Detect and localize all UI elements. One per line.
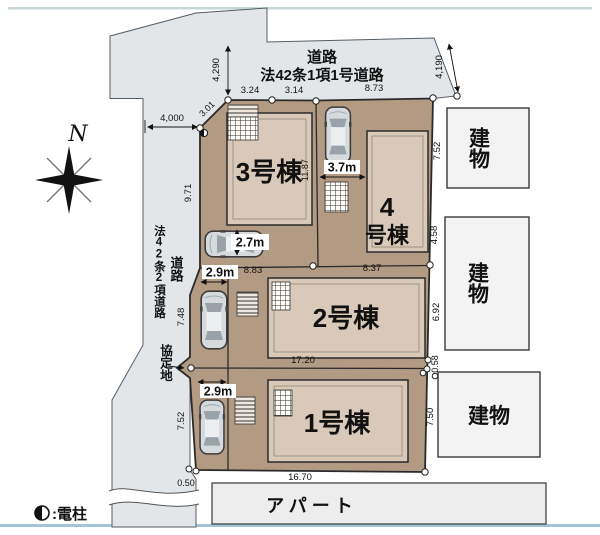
neighbor-building-2-label: 建物: [466, 261, 490, 305]
dim-mid-left: 8.83: [244, 265, 263, 276]
unit4-label-digit: 4: [380, 192, 395, 222]
unit1-parking-width: 2.9m: [204, 385, 233, 399]
dim-front-1: 3.24: [241, 85, 260, 96]
legend-pole-label: :電柱: [52, 505, 87, 523]
unit2-parking-width: 2.9m: [206, 266, 235, 280]
dim-front-3: 8.73: [365, 83, 384, 94]
unit3-label: 3号棟: [236, 157, 303, 187]
dim-east-2: 4.58: [429, 226, 440, 245]
car-icon: [199, 400, 225, 454]
dim-front-2: 3.14: [285, 85, 304, 96]
apartment-label: アパート: [266, 496, 358, 516]
unit3-parking-width: 2.7m: [236, 236, 265, 250]
dim-east-3: 6.92: [431, 303, 442, 322]
unit4-label-suffix: 号棟: [365, 223, 410, 248]
dim-west-lower: 7.52: [176, 412, 187, 431]
top-road-name: 道路: [307, 48, 338, 66]
dim-road-west-width: 4,000: [160, 113, 184, 124]
dim-road-top-left: 4,290: [211, 58, 222, 82]
dim-south-width: 16.70: [288, 472, 312, 483]
dim-mid-width: 17.20: [291, 355, 315, 366]
dim-east-4: 0.58: [430, 355, 440, 373]
unit4-parking-width: 3.7m: [328, 161, 357, 175]
west-road-name: 道路: [169, 255, 184, 282]
unit1-stairs-icon: [235, 397, 255, 424]
unit3-balcony-grid-icon: [228, 117, 258, 140]
dim-west-step: 0.50: [177, 478, 195, 488]
car-icon: [200, 291, 228, 349]
dim-road-top-right: 4,190: [434, 55, 445, 79]
top-accent-rule: [8, 7, 592, 10]
car-icon: [324, 107, 351, 163]
site-plan-page: 4,000 3.24 3.14 8.73 4,290 4,190 3.01 9.…: [0, 0, 600, 535]
north-label: N: [67, 122, 88, 147]
agreement-area-label: 協定地: [158, 343, 173, 382]
west-road-law: 法42条2項道路: [153, 224, 167, 319]
neighbor-building-3-label: 建物: [468, 404, 510, 428]
site-plan-svg: 4,000 3.24 3.14 8.73 4,290 4,190 3.01 9.…: [0, 0, 600, 535]
utility-pole-icon: [200, 129, 207, 136]
dim-mid-right: 8.37: [363, 263, 382, 274]
unit2-label: 2号棟: [313, 303, 380, 333]
apartment-building: [212, 483, 546, 524]
neighbor-building-1-label: 建物: [467, 126, 491, 170]
unit1-balcony-grid-icon: [274, 390, 292, 416]
utility-pole-icon: [35, 506, 49, 520]
top-road-law: 法42条1項1号道路: [260, 66, 384, 84]
unit2-stairs-icon: [237, 292, 258, 316]
unit3-stairs-icon: [228, 105, 258, 117]
unit1-label: 1号棟: [304, 408, 371, 438]
dim-east-1: 7.52: [432, 142, 443, 161]
unit2-balcony-grid-icon: [272, 282, 290, 310]
legend: :電柱: [35, 505, 87, 523]
dim-west-mid: 7.48: [176, 308, 187, 327]
dim-west-upper: 9.71: [183, 184, 194, 203]
unit4-balcony-grid-icon: [325, 182, 348, 212]
dim-east-5: 7.50: [425, 408, 436, 427]
